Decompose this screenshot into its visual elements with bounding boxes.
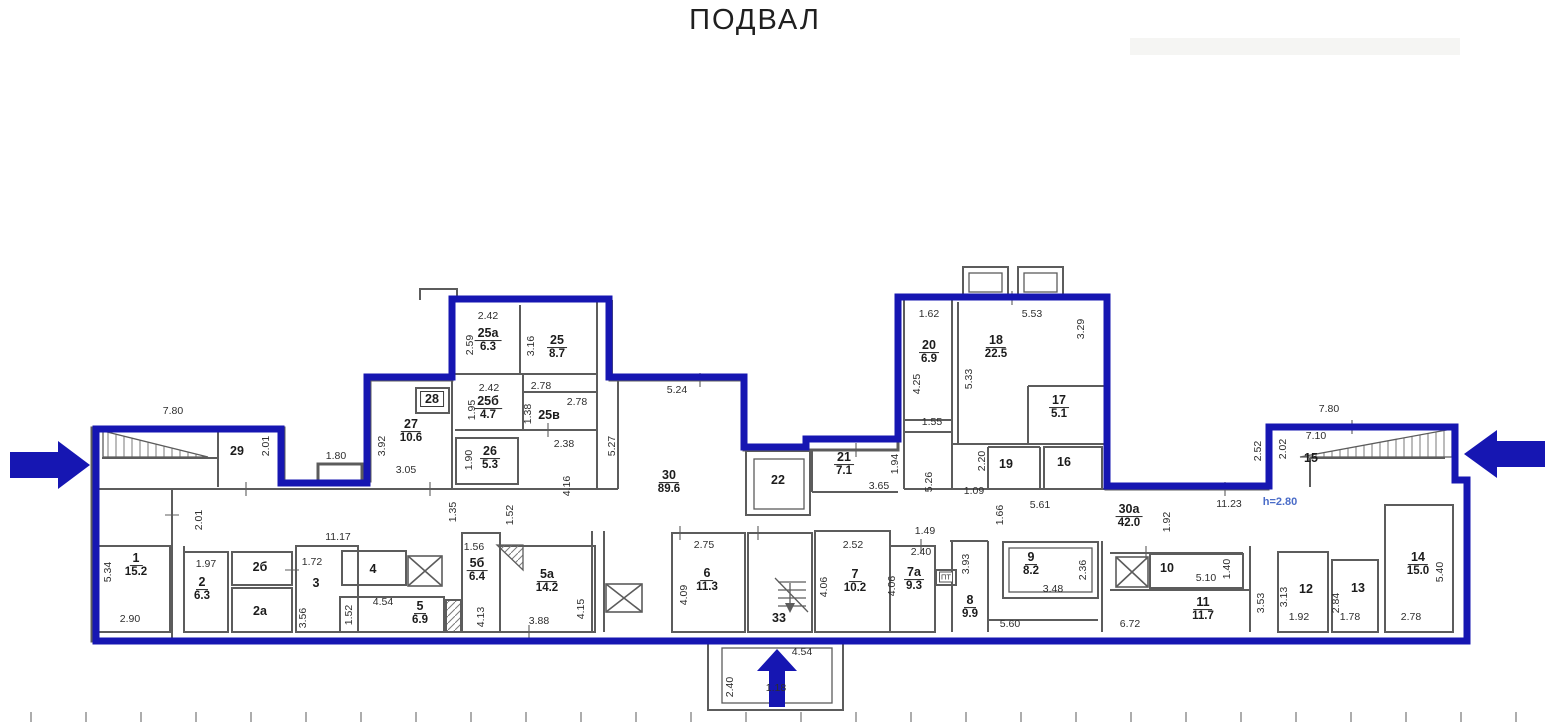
stairs-left: [103, 431, 208, 457]
stairs-33: [775, 578, 808, 613]
floor-plan-page: ПОДВАЛ 115.226.32а2б3456.95а14.25б6.4611…: [0, 0, 1547, 725]
hatched-pier: [446, 600, 461, 632]
entrance-arrow-left: [10, 441, 90, 489]
stairs-right: [1300, 429, 1452, 457]
entrance-arrow-right: [1464, 430, 1545, 478]
floor-plan-drawing: [0, 0, 1547, 725]
scan-artifact: [1130, 38, 1460, 55]
entrance-arrow-bottom: [757, 649, 797, 707]
page-title: ПОДВАЛ: [689, 4, 821, 37]
